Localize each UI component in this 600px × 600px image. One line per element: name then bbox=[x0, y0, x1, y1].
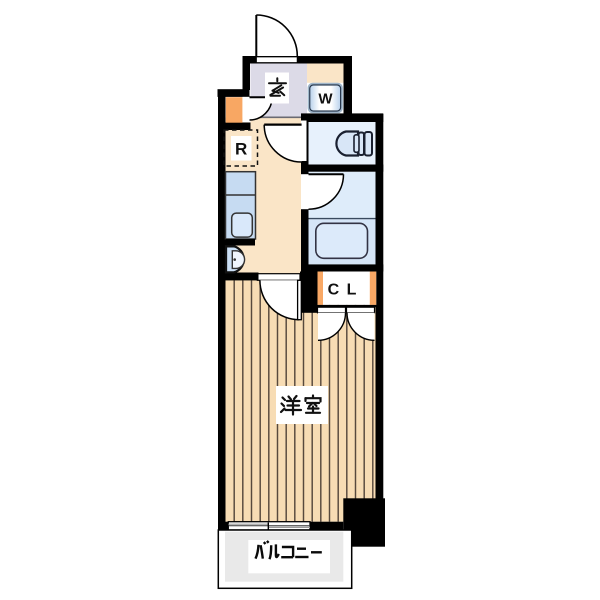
svg-text:C L: C L bbox=[328, 282, 358, 299]
svg-text:R: R bbox=[235, 140, 247, 159]
svg-text:W: W bbox=[318, 91, 333, 108]
